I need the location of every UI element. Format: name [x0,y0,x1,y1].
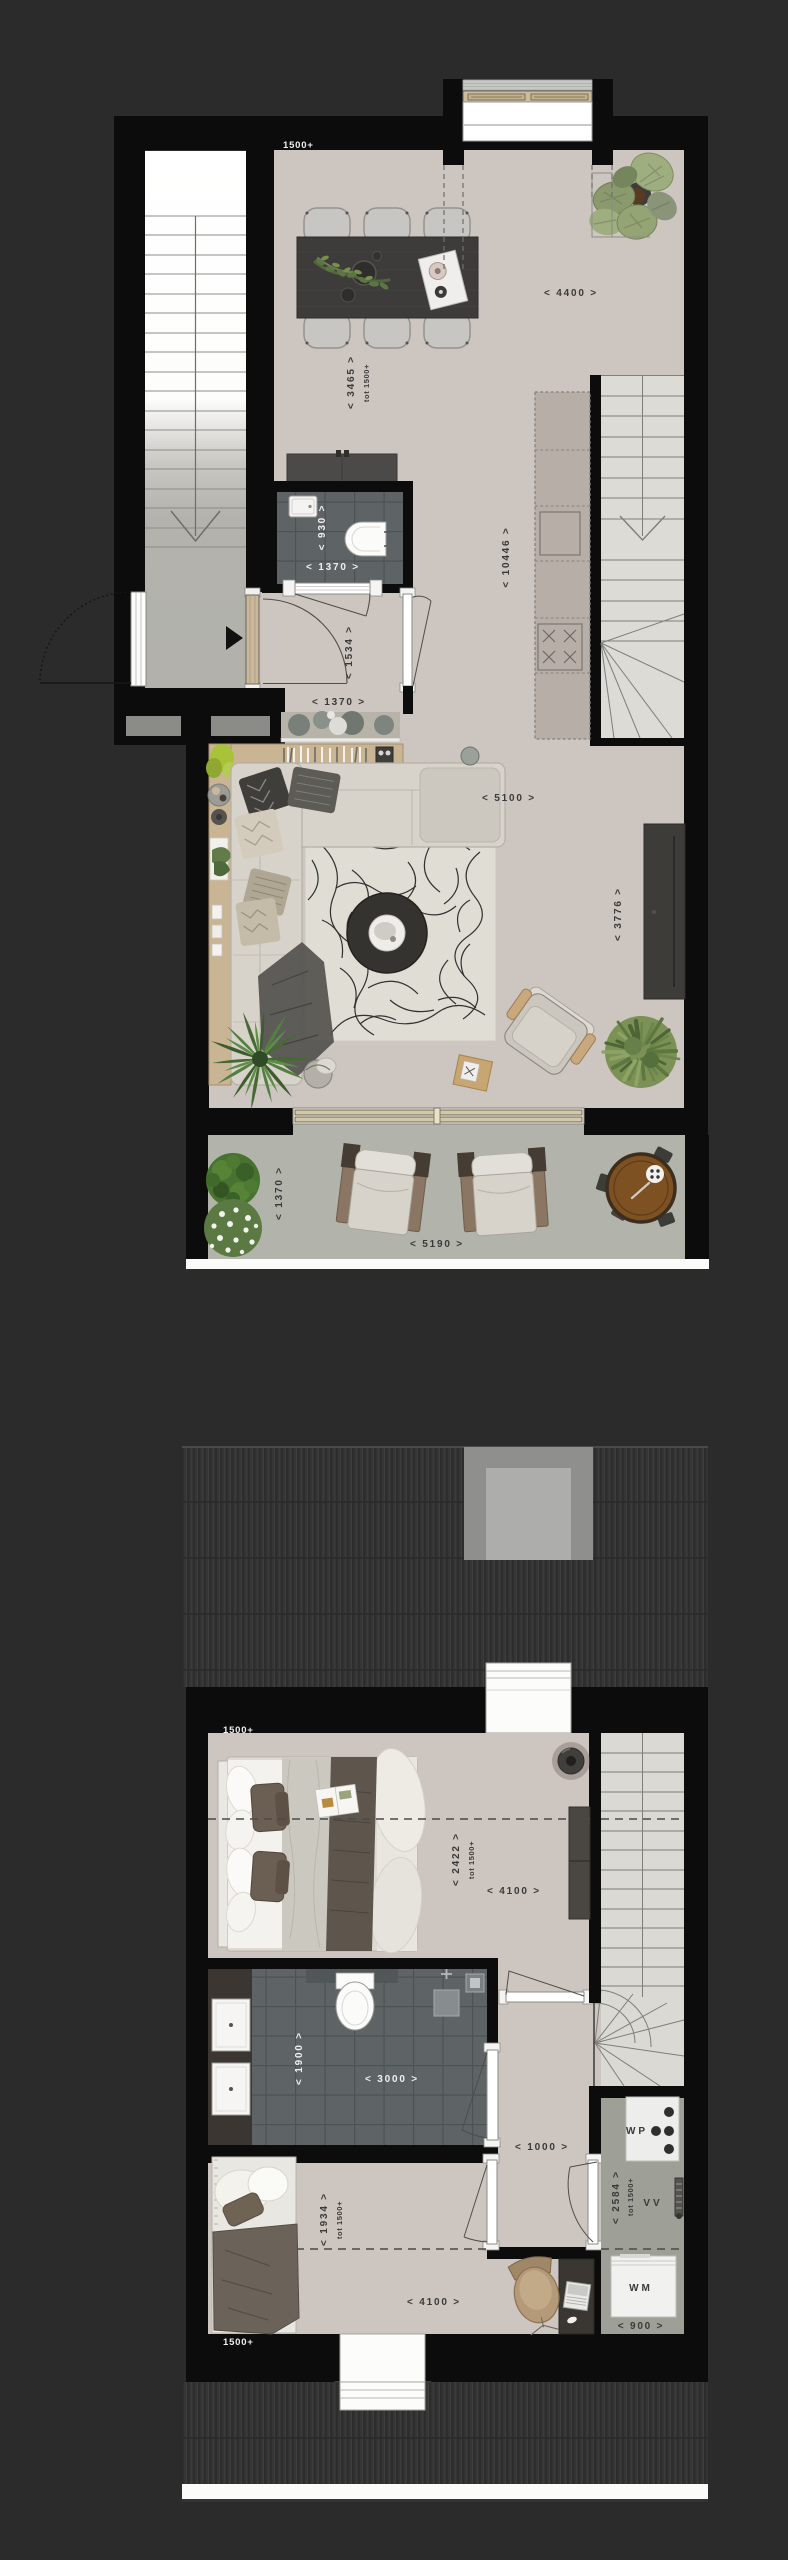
svg-text:< 4100 >: < 4100 > [487,1886,541,1897]
svg-text:< 1934 >: < 1934 > [319,2192,330,2246]
svg-text:tot 1500+: tot 1500+ [467,1841,476,1879]
svg-text:1500+: 1500+ [223,2337,254,2348]
svg-text:tot 1500+: tot 1500+ [362,364,371,402]
svg-text:< 900 >: < 900 > [618,2321,665,2332]
svg-text:< 1000 >: < 1000 > [515,2142,569,2153]
svg-text:< 2584 >: < 2584 > [611,2170,622,2224]
svg-text:tot 1500+: tot 1500+ [335,2201,344,2239]
svg-text:1500+: 1500+ [223,1725,254,1736]
svg-text:< 2422 >: < 2422 > [451,1832,462,1886]
svg-text:< 3776 >: < 3776 > [613,887,624,941]
svg-text:WP: WP [626,2126,648,2137]
svg-text:< 3000 >: < 3000 > [365,2074,419,2085]
svg-text:1500+: 1500+ [283,140,314,151]
svg-text:tot 1500+: tot 1500+ [626,2178,635,2216]
svg-text:< 1900 >: < 1900 > [294,2031,305,2085]
svg-text:< 4100 >: < 4100 > [407,2297,461,2308]
svg-text:< 5100 >: < 5100 > [482,793,536,804]
svg-text:< 5190 >: < 5190 > [410,1239,464,1250]
svg-text:< 10446 >: < 10446 > [501,526,512,587]
svg-text:< 3465 >: < 3465 > [346,355,357,409]
svg-text:WM: WM [629,2283,653,2294]
svg-text:< 930 >: < 930 > [317,504,328,551]
svg-text:< 1534 >: < 1534 > [344,625,355,679]
svg-text:< 1370 >: < 1370 > [306,562,360,573]
svg-text:< 1370 >: < 1370 > [312,697,366,708]
svg-text:< 4400 >: < 4400 > [544,288,598,299]
svg-text:VV: VV [643,2198,662,2209]
svg-text:< 1370 >: < 1370 > [274,1166,285,1220]
